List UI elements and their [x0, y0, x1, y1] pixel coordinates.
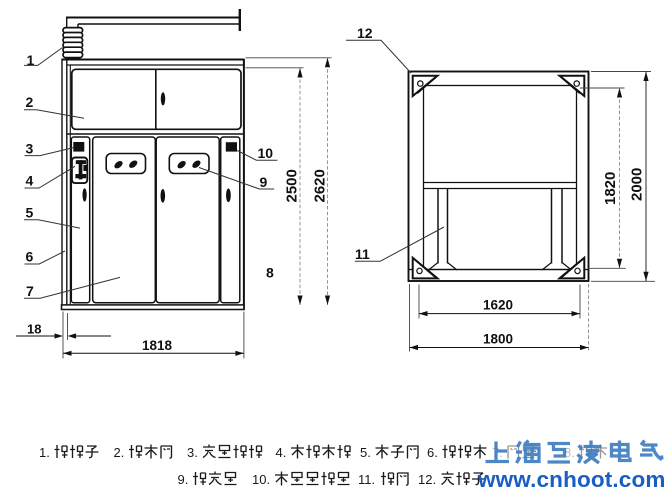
svg-text:2000: 2000: [629, 168, 646, 201]
svg-text:2.: 2.: [114, 445, 125, 460]
svg-text:7: 7: [26, 283, 34, 299]
svg-text:10: 10: [258, 145, 274, 161]
svg-text:11.: 11.: [358, 472, 375, 487]
svg-text:3.: 3.: [187, 445, 198, 460]
svg-text:4: 4: [26, 173, 34, 189]
svg-text:1620: 1620: [483, 298, 513, 313]
svg-text:2620: 2620: [312, 169, 329, 202]
svg-text:12: 12: [357, 25, 373, 41]
svg-text:5: 5: [26, 205, 34, 221]
svg-text:1818: 1818: [142, 338, 173, 353]
svg-text:5.: 5.: [360, 445, 371, 460]
svg-text:6: 6: [26, 249, 34, 265]
svg-text:1800: 1800: [483, 332, 513, 347]
svg-text:1.: 1.: [39, 445, 50, 460]
svg-text:18: 18: [27, 322, 41, 337]
svg-text:1820: 1820: [602, 172, 619, 205]
svg-text:2: 2: [26, 94, 34, 110]
svg-text:12.: 12.: [418, 472, 436, 487]
svg-text:www.cnhoot.com: www.cnhoot.com: [477, 467, 666, 492]
svg-text:2500: 2500: [284, 169, 301, 202]
svg-text:8: 8: [266, 265, 274, 281]
svg-text:6.: 6.: [427, 445, 438, 460]
svg-text:4.: 4.: [276, 445, 287, 460]
svg-text:11: 11: [355, 246, 370, 262]
svg-text:10.: 10.: [252, 472, 270, 487]
svg-text:3: 3: [26, 141, 34, 157]
svg-text:9.: 9.: [178, 472, 189, 487]
svg-text:9: 9: [260, 174, 268, 190]
